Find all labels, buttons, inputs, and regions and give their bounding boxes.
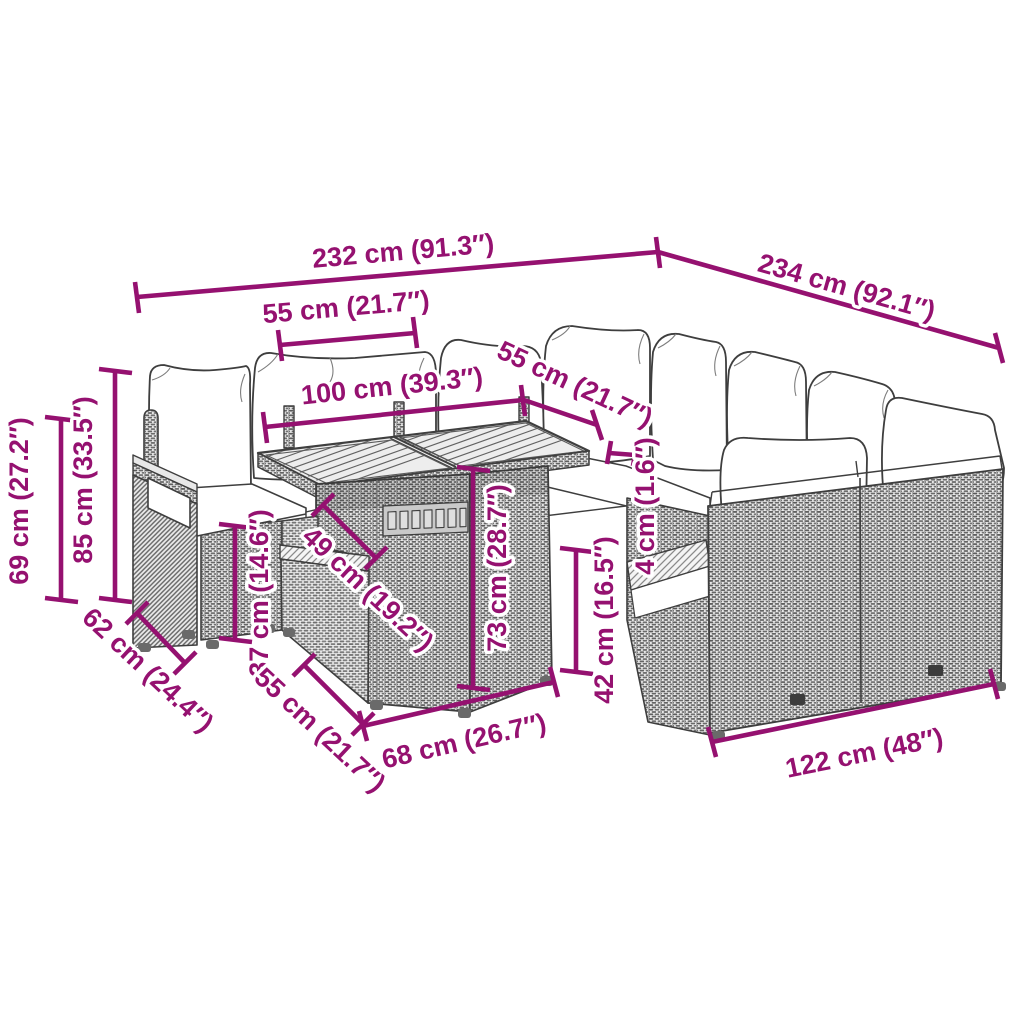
svg-text:4 cm (1.6″): 4 cm (1.6″) <box>630 437 660 575</box>
svg-text:42 cm (16.5″): 42 cm (16.5″) <box>589 536 619 704</box>
svg-text:73 cm (28.7″): 73 cm (28.7″) <box>482 484 512 652</box>
svg-text:85 cm (33.5″): 85 cm (33.5″) <box>68 396 98 564</box>
svg-text:37 cm (14.6″): 37 cm (14.6″) <box>244 509 274 677</box>
svg-text:69 cm (27.2″): 69 cm (27.2″) <box>4 417 34 585</box>
